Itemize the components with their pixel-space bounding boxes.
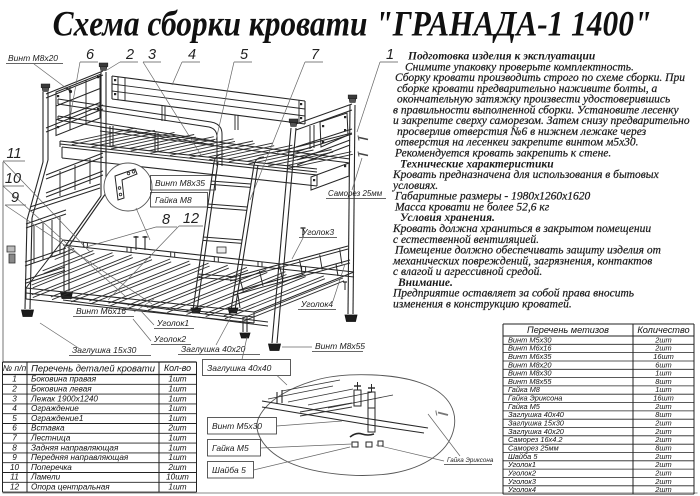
svg-text:1шт: 1шт <box>168 414 186 423</box>
svg-text:Ограждение1: Ограждение1 <box>31 414 83 423</box>
svg-text:Уголок1: Уголок1 <box>156 318 189 328</box>
svg-text:Гайка Эриксона: Гайка Эриксона <box>447 456 494 464</box>
svg-text:6: 6 <box>86 47 95 63</box>
svg-text:8: 8 <box>162 212 170 228</box>
svg-text:Ламели: Ламели <box>30 473 61 482</box>
svg-text:1шт: 1шт <box>168 483 186 492</box>
svg-text:Задняя направляющая: Задняя направляющая <box>31 443 119 452</box>
svg-text:9: 9 <box>12 453 17 462</box>
svg-text:1шт: 1шт <box>168 375 186 384</box>
svg-text:5: 5 <box>12 414 17 423</box>
svg-text:4: 4 <box>12 404 17 413</box>
svg-text:Боковина левая: Боковина левая <box>31 385 92 394</box>
svg-text:Опора центральная: Опора центральная <box>31 483 110 492</box>
svg-text:Саморез 25мм: Саморез 25мм <box>328 189 383 198</box>
svg-text:Перечень метизов: Перечень метизов <box>527 325 609 335</box>
svg-text:11: 11 <box>6 146 21 162</box>
svg-text:1шт: 1шт <box>168 394 186 403</box>
svg-text:1шт: 1шт <box>168 443 186 452</box>
svg-text:изменения в конструкцию кроват: изменения в конструкцию кроватей. <box>393 297 572 310</box>
svg-text:1шт: 1шт <box>168 385 186 394</box>
svg-text:5: 5 <box>240 47 249 63</box>
svg-text:Винт М8х55: Винт М8х55 <box>315 341 365 351</box>
svg-text:1: 1 <box>386 47 394 63</box>
svg-text:Перечень деталей кровати: Перечень деталей кровати <box>31 362 156 373</box>
svg-text:Гайка М5: Гайка М5 <box>212 443 249 453</box>
svg-text:Гайка М8: Гайка М8 <box>155 195 192 205</box>
svg-text:8: 8 <box>12 443 17 452</box>
svg-text:2: 2 <box>125 47 134 63</box>
svg-text:Лестница: Лестница <box>30 434 71 443</box>
svg-text:Уголок4: Уголок4 <box>507 485 536 494</box>
svg-text:Кол-во: Кол-во <box>164 363 191 373</box>
svg-text:6: 6 <box>12 424 17 433</box>
svg-text:Схема сборки кровати "ГРАНАДА-: Схема сборки кровати "ГРАНАДА-1 1400" <box>53 5 652 44</box>
svg-text:3: 3 <box>148 47 156 63</box>
svg-text:Винт М8х35: Винт М8х35 <box>155 178 205 188</box>
svg-text:Количество: Количество <box>637 325 689 335</box>
svg-text:Поперечка: Поперечка <box>31 463 72 472</box>
svg-text:Заглушка 40х40: Заглушка 40х40 <box>207 363 272 373</box>
svg-text:3: 3 <box>12 394 17 403</box>
svg-text:10шт: 10шт <box>166 473 189 482</box>
svg-text:2шт: 2шт <box>167 463 186 472</box>
svg-text:Передняя направляющая: Передняя направляющая <box>31 453 129 462</box>
svg-text:№ п/п: № п/п <box>3 363 27 373</box>
svg-text:Заглушка 15х30: Заглушка 15х30 <box>72 345 137 355</box>
svg-text:Уголок3: Уголок3 <box>301 227 334 237</box>
svg-text:1: 1 <box>12 375 17 384</box>
svg-text:1шт: 1шт <box>168 453 186 462</box>
svg-text:2: 2 <box>11 385 17 394</box>
svg-text:11: 11 <box>10 473 19 482</box>
svg-text:2шт: 2шт <box>654 485 671 494</box>
svg-text:7: 7 <box>311 47 320 63</box>
svg-text:Винт М5х30: Винт М5х30 <box>212 421 262 431</box>
svg-text:12: 12 <box>183 211 199 227</box>
svg-text:Вставка: Вставка <box>31 424 65 433</box>
svg-text:Уголок2: Уголок2 <box>153 334 186 344</box>
svg-text:Шайба 5: Шайба 5 <box>212 465 246 475</box>
svg-text:7: 7 <box>12 434 17 443</box>
svg-text:10: 10 <box>5 171 21 187</box>
svg-text:10: 10 <box>10 463 20 472</box>
svg-text:4: 4 <box>188 47 196 63</box>
svg-text:1шт: 1шт <box>168 434 186 443</box>
svg-text:Винт М8х20: Винт М8х20 <box>8 53 58 63</box>
svg-text:12: 12 <box>10 483 20 492</box>
svg-text:9: 9 <box>11 190 19 206</box>
svg-text:2шт: 2шт <box>167 424 186 433</box>
svg-text:Уголок4: Уголок4 <box>300 299 333 309</box>
svg-text:Заглушка 40х20: Заглушка 40х20 <box>181 344 246 354</box>
svg-text:1шт: 1шт <box>168 404 186 413</box>
svg-text:Ограждение: Ограждение <box>31 404 79 413</box>
svg-text:Лежак 1900х1240: Лежак 1900х1240 <box>30 394 98 403</box>
svg-text:Винт М6х16: Винт М6х16 <box>76 306 126 316</box>
svg-text:Боковина правая: Боковина правая <box>31 375 97 384</box>
